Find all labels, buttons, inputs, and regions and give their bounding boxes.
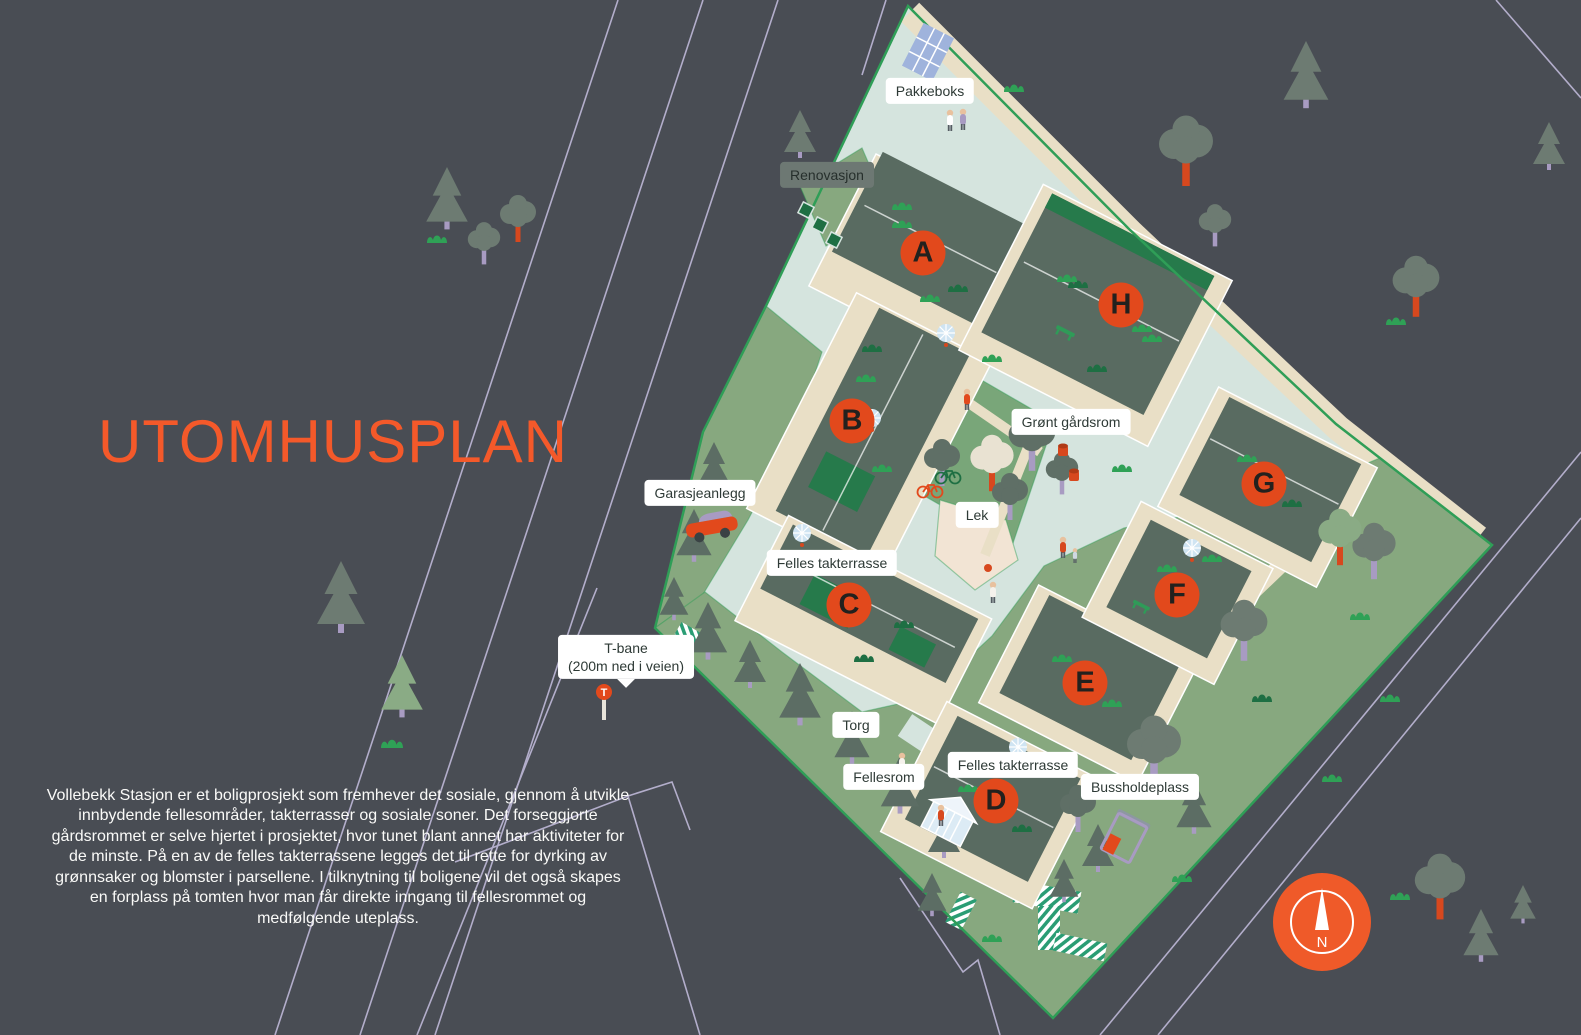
map-label-felles-takterrasse: Felles takterrasse [948, 752, 1078, 778]
building-marker-c: C [827, 583, 872, 628]
utomhusplan-page: T ABCDEFGHPakkeboksRenovasjonGrønt gårds… [0, 0, 1581, 1035]
map-label-pakkeboks: Pakkeboks [886, 78, 974, 104]
building-marker-a: A [901, 231, 946, 276]
map-label-felles-takterrasse: Felles takterrasse [767, 550, 897, 576]
building-marker-h: H [1099, 283, 1144, 328]
compass-needle-icon [1315, 888, 1329, 930]
compass: N [1273, 873, 1371, 971]
map-label-torg: Torg [832, 712, 879, 738]
building-marker-f: F [1155, 573, 1200, 618]
map-label-renovasjon: Renovasjon [780, 162, 874, 188]
map-label-bussholdeplass: Bussholdeplass [1081, 774, 1199, 800]
project-description: Vollebekk Stasjon er et boligprosjekt so… [46, 786, 630, 929]
map-label-fellesrom: Fellesrom [843, 764, 924, 790]
map-label-lek: Lek [956, 502, 999, 528]
map-label-garasjeanlegg: Garasjeanlegg [644, 480, 755, 506]
building-marker-d: D [974, 779, 1019, 824]
building-marker-b: B [830, 399, 875, 444]
building-marker-e: E [1063, 661, 1108, 706]
map-label-gr-nt-g-rdsrom: Grønt gårdsrom [1012, 409, 1131, 435]
map-label-t-bane: T-bane(200m ned i veien) [558, 635, 694, 679]
compass-north-label: N [1317, 934, 1328, 951]
building-marker-g: G [1242, 462, 1287, 507]
page-title: UTOMHUSPLAN [98, 412, 568, 472]
